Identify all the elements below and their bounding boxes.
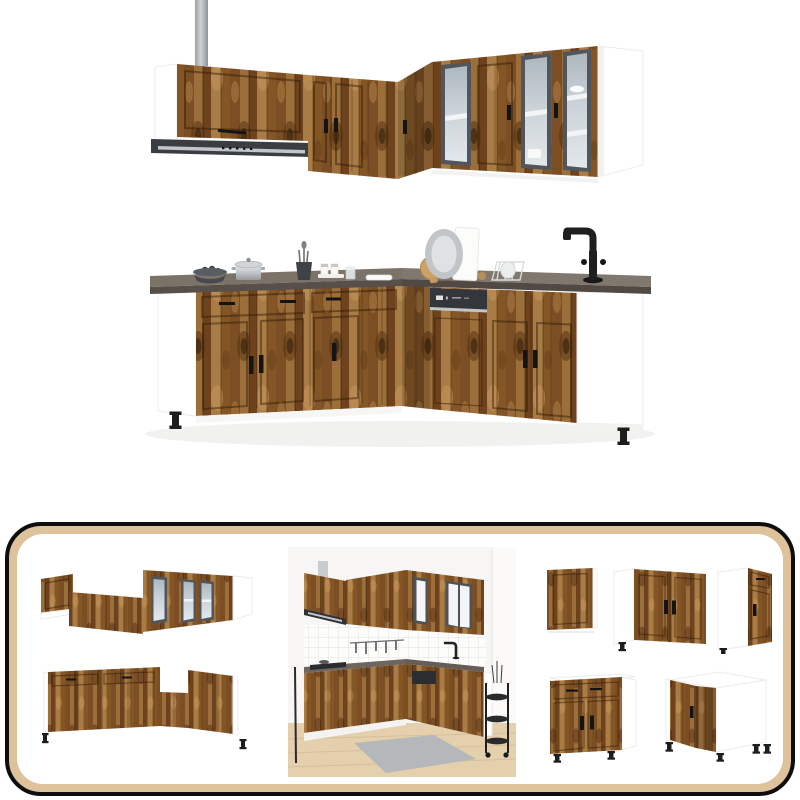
wall-right-end-panel bbox=[598, 46, 643, 177]
thumb-base-cabinet-drawer bbox=[546, 668, 648, 764]
wall-left-end-panel bbox=[155, 64, 177, 144]
thumb-kitchen-room-scene bbox=[288, 547, 516, 777]
duct-pipe bbox=[195, 0, 208, 66]
thumb-base-cabinet-set bbox=[42, 664, 254, 756]
thumb-sink-base-cabinet bbox=[612, 566, 716, 652]
range-hood bbox=[151, 139, 311, 157]
cooking-pot bbox=[232, 258, 266, 280]
hood-wall-cabinet bbox=[177, 64, 308, 141]
base-run-left bbox=[196, 283, 402, 416]
scene-dishwasher bbox=[412, 671, 436, 684]
glass-door-right bbox=[563, 49, 591, 172]
floor-lamp bbox=[295, 667, 296, 763]
wall-cabinet-two-door bbox=[308, 75, 398, 179]
serving-tray bbox=[366, 275, 392, 280]
thumb-wall-cabinet bbox=[544, 566, 600, 638]
thumb-drawer-base-cabinet bbox=[716, 566, 776, 654]
corner-wall-cabinet bbox=[398, 62, 432, 179]
wall-cabinets-glass-run bbox=[432, 46, 598, 177]
kitchen-cabinet-set-product-image bbox=[0, 0, 800, 800]
base-run-right bbox=[430, 287, 577, 423]
wall-cabinet-scene bbox=[0, 0, 800, 212]
thumb-wall-cabinet-set bbox=[36, 562, 258, 650]
glass-door-left bbox=[441, 62, 471, 166]
glass-door-middle bbox=[521, 53, 551, 170]
thumb-leg bbox=[720, 648, 728, 654]
fruit-bowl bbox=[193, 266, 227, 284]
utensil-jar bbox=[296, 241, 312, 280]
thumb-leg bbox=[619, 642, 627, 651]
thumb-corner-base-cabinet bbox=[662, 668, 776, 764]
base-left-end-panel bbox=[158, 291, 196, 416]
leg-left bbox=[170, 412, 182, 430]
thumb-legs bbox=[42, 733, 247, 749]
gallery-panel-inner bbox=[17, 534, 783, 784]
decor-board-and-mirror bbox=[425, 227, 479, 280]
base-right-end-panel bbox=[577, 289, 643, 432]
corner-base-cabinet bbox=[402, 283, 430, 409]
gallery-panel bbox=[5, 522, 795, 796]
thumb-glass-doors bbox=[151, 576, 214, 624]
wooden-ball bbox=[478, 272, 486, 280]
base-cabinet-scene bbox=[0, 210, 800, 472]
drinking-glass bbox=[346, 267, 355, 279]
